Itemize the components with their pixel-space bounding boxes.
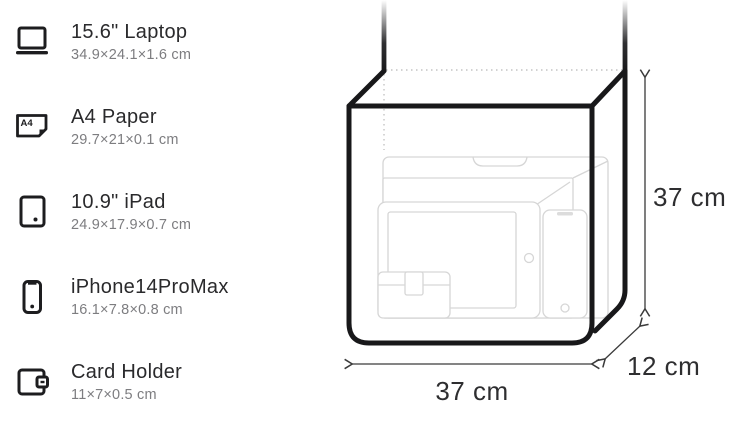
item-label: Card Holder: [71, 361, 182, 383]
legend-item-ipad: 10.9" iPad 24.9×17.9×0.7 cm: [10, 188, 310, 236]
item-dimensions: 29.7×21×0.1 cm: [71, 132, 179, 149]
bag-size-diagram: A4 15.6 37 cm 37 cm 12 cm: [330, 0, 750, 426]
item-label: 15.6" Laptop: [71, 21, 191, 43]
iphone-icon: [10, 275, 54, 319]
legend-item-card-holder: Card Holder 11×7×0.5 cm: [10, 358, 310, 406]
iphone-notch: [557, 212, 573, 216]
bag-top-right-edge: [592, 71, 625, 106]
laptop-icon: [10, 20, 54, 64]
item-label: 10.9" iPad: [71, 191, 191, 213]
bag-contents: A4 15.6: [378, 157, 608, 318]
item-dimensions: 24.9×17.9×0.7 cm: [71, 217, 191, 234]
legend-item-a4-paper: A4 A4 Paper 29.7×21×0.1 cm: [10, 103, 310, 151]
bag-top-left-edge: [349, 71, 384, 106]
legend-item-iphone: iPhone14ProMax 16.1×7.8×0.8 cm: [10, 273, 310, 321]
height-dimension-label: 37 cm: [653, 182, 726, 212]
strap-left: [382, 0, 387, 72]
item-legend: 15.6" Laptop 34.9×24.1×1.6 cm A4 A4 Pape…: [10, 18, 310, 443]
card-holder-icon: [10, 360, 54, 404]
item-label: iPhone14ProMax: [71, 276, 229, 298]
a4-icon-label: A4: [21, 118, 34, 129]
legend-item-laptop: 15.6" Laptop 34.9×24.1×1.6 cm: [10, 18, 310, 66]
item-dimensions: 16.1×7.8×0.8 cm: [71, 302, 229, 319]
depth-dimension-label: 12 cm: [627, 351, 700, 381]
item-dimensions: 11×7×0.5 cm: [71, 387, 182, 404]
item-dimensions: 34.9×24.1×1.6 cm: [71, 47, 191, 64]
strap-right: [623, 0, 628, 72]
iphone-outline: [543, 210, 587, 318]
ipad-icon: [10, 190, 54, 234]
a4-paper-icon: A4: [10, 105, 54, 149]
item-label: A4 Paper: [71, 106, 179, 128]
width-dimension-label: 37 cm: [435, 376, 508, 406]
card-holder-clasp: [405, 272, 423, 295]
